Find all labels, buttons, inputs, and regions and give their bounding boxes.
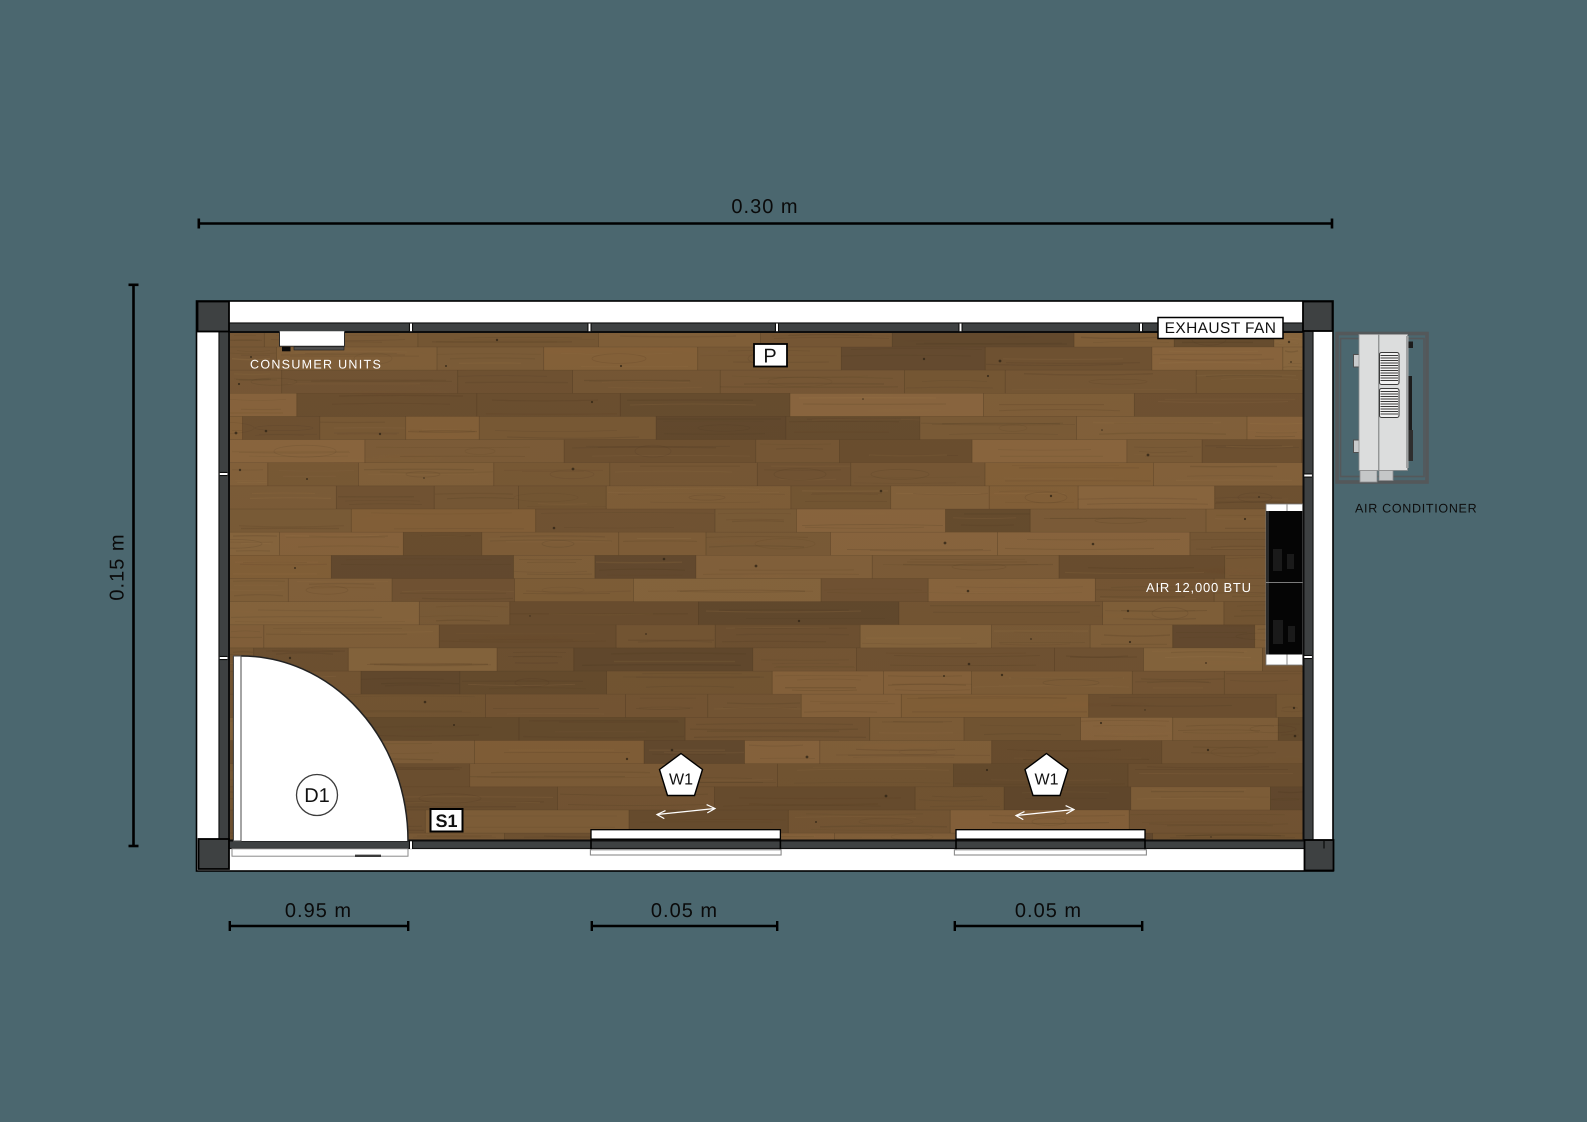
svg-text:S1: S1 — [435, 811, 457, 831]
svg-text:P: P — [763, 346, 776, 368]
svg-text:W1: W1 — [669, 772, 693, 789]
svg-text:EXHAUST FAN: EXHAUST FAN — [1165, 320, 1277, 337]
svg-text:0.15 m: 0.15 m — [107, 533, 129, 600]
svg-text:CONSUMER UNITS: CONSUMER UNITS — [250, 358, 382, 372]
svg-text:AIR 12,000 BTU: AIR 12,000 BTU — [1146, 580, 1252, 595]
svg-text:0.05 m: 0.05 m — [651, 900, 718, 922]
svg-text:AIR CONDITIONER: AIR CONDITIONER — [1355, 502, 1477, 516]
svg-text:0.05 m: 0.05 m — [1015, 900, 1082, 922]
svg-text:0.95 m: 0.95 m — [285, 900, 352, 922]
svg-text:0.30 m: 0.30 m — [731, 196, 798, 218]
svg-text:D1: D1 — [304, 785, 330, 807]
svg-text:W1: W1 — [1035, 772, 1059, 789]
